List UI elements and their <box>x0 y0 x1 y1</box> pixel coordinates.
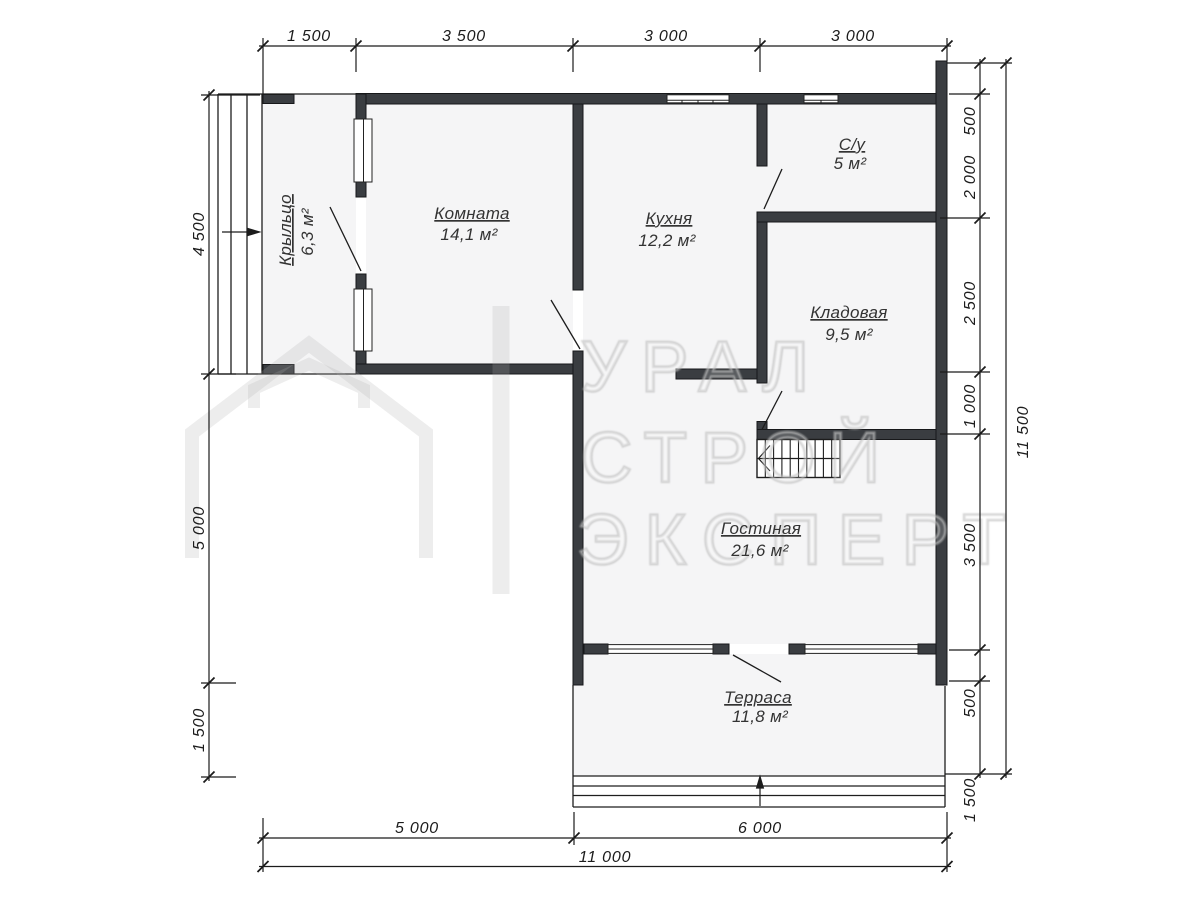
svg-text:Кладовая: Кладовая <box>810 303 887 322</box>
svg-text:3 500: 3 500 <box>962 523 979 567</box>
svg-text:1 000: 1 000 <box>962 384 979 428</box>
svg-text:14,1 м²: 14,1 м² <box>440 225 498 244</box>
svg-text:6,3 м²: 6,3 м² <box>298 207 317 256</box>
svg-text:Терраса: Терраса <box>724 688 792 707</box>
svg-text:Кухня: Кухня <box>646 209 693 228</box>
svg-text:4 500: 4 500 <box>191 212 208 256</box>
svg-text:500: 500 <box>962 688 979 717</box>
svg-text:С/у: С/у <box>839 135 867 154</box>
svg-text:500: 500 <box>962 106 979 135</box>
svg-text:2 500: 2 500 <box>962 281 979 326</box>
svg-text:5 м²: 5 м² <box>834 154 868 173</box>
svg-text:1 500: 1 500 <box>962 778 979 822</box>
svg-text:2 000: 2 000 <box>962 155 979 200</box>
svg-text:9,5 м²: 9,5 м² <box>825 325 874 344</box>
svg-text:3 000: 3 000 <box>644 28 688 45</box>
svg-text:3 000: 3 000 <box>831 28 875 45</box>
svg-text:5 000: 5 000 <box>395 820 439 837</box>
svg-text:3 500: 3 500 <box>442 28 486 45</box>
svg-text:21,6 м²: 21,6 м² <box>730 541 789 560</box>
svg-text:Комната: Комната <box>434 204 509 223</box>
svg-text:1 500: 1 500 <box>287 28 331 45</box>
svg-text:6 000: 6 000 <box>738 820 782 837</box>
svg-text:1 500: 1 500 <box>191 708 208 752</box>
svg-text:11,8 м²: 11,8 м² <box>732 707 789 726</box>
svg-text:12,2 м²: 12,2 м² <box>638 231 696 250</box>
svg-text:Гостиная: Гостиная <box>721 519 801 538</box>
svg-text:СТРОЙ: СТРОЙ <box>581 418 880 498</box>
svg-text:11 000: 11 000 <box>579 849 632 866</box>
svg-text:11 500: 11 500 <box>1015 406 1032 459</box>
svg-text:Крыльцо: Крыльцо <box>276 194 295 266</box>
svg-text:5 000: 5 000 <box>191 506 208 550</box>
